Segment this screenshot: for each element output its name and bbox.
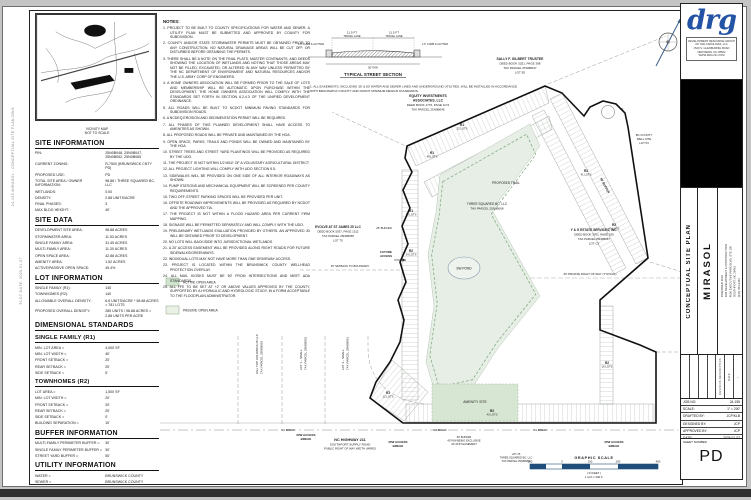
lane-right-name: TRAVEL LANE (385, 34, 403, 38)
note-item: 9. OPEN SPACE, PARKS, TRAILS AND PONDS W… (163, 140, 310, 149)
lot1-label-2: TAX PARCEL 25N0B062 (304, 337, 308, 370)
curb-right-label: 1.5' CURB & GUTTER (422, 42, 448, 46)
note-item: 18. SIGNAGE WILL BE PERMITTED SEPARATELY… (163, 223, 310, 228)
lot25-label-3: TAX PARCEL 25N0B052 (502, 459, 531, 463)
prepared-for-line: DLB DEVELOPMENT & CONSTRUCTION (724, 244, 728, 297)
revision-cell (681, 355, 690, 398)
data-row: SIDE SETBACK =5' (35, 371, 159, 375)
data-row: CURRENT ZONING:R-7500 (BRUNSWICK CNTY PD… (35, 162, 159, 171)
parcel-label-equity-3: DEED BOOK 1776, PAGE 1174 (407, 103, 450, 107)
zone-label: R2 (584, 169, 588, 173)
owner-center-label-2: TAX PARCEL 25N0B068 (470, 207, 503, 211)
note-item: 8. ALL PROPOSED ROADS WILL BE PRIVATE AN… (163, 133, 310, 138)
sheet-number-block: SHEET NUMBER PD (681, 439, 742, 477)
zone-count: 12 LOTS (383, 395, 394, 399)
revision-date-header: DATE (725, 355, 734, 398)
data-row: SINGLE FAMILY PERIMETER BUFFER =30' (35, 448, 159, 452)
job-info-block: JOB NO:24-155SCALE:1" = 200'DRAFTED BY:J… (681, 399, 742, 439)
notes-list: 1. PROJECT TO BE BUILT TO COUNTY SPECIFI… (163, 26, 310, 298)
data-sidebar: VICINITY MAP NOT TO SCALE SITE INFORMATI… (35, 13, 159, 486)
vicinity-map (35, 13, 157, 121)
open-space-area (426, 124, 540, 396)
data-row: PIN:25N0B048, 25N0B047, 25N0B052, 25N0B0… (35, 151, 159, 160)
lot25-label-1: LOT 25 (512, 452, 521, 456)
cul-de-sac (602, 106, 615, 119)
access-break-2b: BREAK (393, 444, 405, 448)
section-title-site-data: SITE DATA (35, 217, 159, 226)
easement-note-line1: 1. ALL EASEMENTS, INCLUDING 30' & 50' WA… (310, 85, 517, 89)
parcel-label-sally-3: TAX PARCEL 25N0B047 (503, 66, 536, 70)
zone-count: 40 LOTS (609, 227, 620, 231)
revision-cell (690, 355, 699, 398)
highway-row-note: PUBLIC RIGHT OF WAY WIDTH VARIES (324, 447, 376, 451)
data-row: PROPOSED USE:PD (35, 173, 159, 177)
data-row: WATER =BRUNSWICK COUNTY (35, 474, 159, 478)
data-row: LOT AREA =1,500 SF (35, 390, 159, 394)
revision-cell (708, 355, 717, 398)
hilltop-label-1: HILL TOP HOLDINGS 25 LLC (255, 333, 259, 374)
data-row: TOWNHOMES (R2):140 (35, 292, 159, 296)
note-item: 24. ALL MAIL KIOSKS MUST BE 50' FROM INT… (163, 274, 310, 283)
parcel-label-yg-2: DEED BOOK 3761, PAGE 529 (574, 233, 614, 237)
note-item: 19. PRELIMINARY WETLANDS EVALUATION PROV… (163, 229, 310, 238)
rotated-parcel-labels: HILL TOP HOLDINGS 25 LLC TAX PARCEL 25N0… (255, 333, 350, 374)
data-row: TOTAL SITE AREA / OWNER INFORMATION:98.8… (35, 179, 159, 188)
prepared-for-block: PREPARED FOR: DLB DEVELOPMENT & CONSTRUC… (720, 244, 741, 297)
private-row-label: 60' PRIVATE RIGHT OF WAY (TYPICAL) (564, 272, 617, 276)
data-row: STORMWATER AREA:11.53 ACRES (35, 235, 159, 239)
buffer-bottom-3: OF AT&T EASEMENT (451, 442, 477, 446)
street-section-title: TYPICAL STREET SECTION (344, 72, 402, 77)
prepared-for-line: 4006 EXECUTIVE PARK BLVD, STE 100 (728, 244, 732, 297)
legend-label-passive: PASSIVE OPEN AREA (183, 309, 219, 313)
sheet-title-vertical: CONCEPTUAL SITE PLAN (686, 224, 692, 319)
job-info-rows: JOB NO:24-155SCALE:1" = 200'DRAFTED BY:J… (681, 399, 742, 439)
highway-name: NC HIGHWAY 211 (334, 438, 365, 442)
parcel-label-yg-3: TAX PARCEL 25N0B067 (578, 237, 610, 241)
buffer-rows: MULTI-FAMILY PERIMETER BUFFER =30'SINGLE… (35, 441, 159, 458)
margin-file-note: 24-155 MIRASOL - CONCEPTUAL SITE PLAN.DW… (11, 107, 15, 206)
lot-band-right (600, 306, 613, 404)
section-title-lot-information: LOT INFORMATION (35, 275, 159, 284)
revision-desc-header: REVISION DESCRIPTION (716, 355, 725, 398)
drawing-sheet-stage: 24-155 MIRASOL - CONCEPTUAL SITE PLAN.DW… (0, 0, 751, 500)
zone-label: R2 (409, 249, 413, 253)
seal-block (681, 80, 742, 188)
job-info-row: APPROVED BY:JCP (681, 428, 742, 435)
zone-label: R2 (490, 409, 494, 413)
hilltop-label-2: TAX PARCEL 25N0B063 (260, 341, 264, 374)
title-block: drg DEVELOPMENT RESOURCE GROUP OF THE CA… (680, 3, 743, 480)
lot1-label-1: LOT 1 - SMALL (299, 349, 303, 370)
data-row: MIN. LOT WIDTH =40' (35, 352, 159, 356)
margin-plot-note: PLOT DATE: 2025-01-07 (19, 257, 23, 304)
notes-title: NOTES: (163, 19, 310, 24)
job-info-row: SCALE:1" = 200' (681, 406, 742, 413)
data-row: SINGLE FAMILY AREA:31.45 ACRES (35, 241, 159, 245)
note-item: 11. THE PROJECT IS NOT WITHIN 1/2 MILE O… (163, 161, 310, 166)
parcel-label-equity-4: TAX PARCEL 25N0B046 (411, 108, 444, 112)
data-row: MULTI-FAMILY AREA:11.30 ACRES (35, 247, 159, 251)
pond-label: SW POND (456, 267, 472, 271)
section-title-buffer-information: BUFFER INFORMATION (35, 430, 159, 439)
easement-note-line2: WITH BRUNSWICK COUNTY AND NCDOT MINIMUM … (310, 89, 419, 93)
lot2-label-1: LOT 2 - SMALL (341, 349, 345, 370)
zone-label: R1 (409, 209, 413, 213)
data-row: AMENITY AREA:1.52 ACRES (35, 260, 159, 264)
data-row: DEVELOPMENT SITE AREA:98.88 ACRES (35, 228, 159, 232)
scale-tick: 0 (561, 460, 563, 464)
graphic-scale-title: GRAPHIC SCALE (574, 456, 613, 460)
revisions-block: REVISION DESCRIPTION DATE - (681, 355, 742, 399)
prepared-for-line: PREPARED FOR: (720, 244, 724, 297)
drg-logo: drg (681, 7, 742, 35)
owner-center-label-1: THREE SQUARED BC, LLC (467, 202, 508, 206)
parcel-label-equity-2: ASSOCIATES, LLC (413, 99, 444, 103)
zone-label: R1 (430, 151, 434, 155)
vicinity-blob-small (124, 68, 133, 73)
section-bottom-dim: 50' R/W (368, 66, 378, 70)
scale-tick: 200 (616, 460, 621, 464)
note-item: 12. ALL PROJECT LIGHTING WILL COMPLY WIT… (163, 167, 310, 172)
parcel-label-well-3: LOT 54 (639, 141, 649, 145)
single-family-rows: MIN. LOT AREA =4,000 SFMIN. LOT WIDTH =4… (35, 346, 159, 376)
sheet-shadow (0, 489, 751, 497)
job-info-row: DESIGNED BY:JCP (681, 421, 742, 428)
note-item: 7. ALL PHASES OF THIS PLANNED DEVELOPMEN… (163, 123, 310, 132)
parcel-label-equity-1: EQUITY INVESTMENTS (409, 94, 447, 98)
note-item: 13. SIDEWALKS WILL BE PROVIDED ON ONE SI… (163, 174, 310, 183)
scale-bar-ticks: 100 0 100 200 400 (528, 460, 661, 464)
revision-cell (699, 355, 708, 398)
data-row: FRONT SETBACK =20' (35, 403, 159, 407)
job-info-row: DATE:2025-01-07 (681, 435, 742, 439)
scale-tick: 400 (656, 460, 661, 464)
note-item: 15. TWO OFF-STREET PARKING SPACES WILL B… (163, 195, 310, 200)
zone-count: 41 LOTS (581, 173, 592, 177)
highway-labels: NC HIGHWAY 211 SOUTHPORT SUPPLY ROAD PUB… (281, 428, 623, 463)
data-row: OPEN SPACE AREA:42.88 ACRES (35, 254, 159, 258)
access-break-1b: BREAK (301, 437, 313, 441)
zone-count: 18 LOTS (406, 213, 417, 217)
data-row: FRONT SETBACK =20' (35, 358, 159, 362)
prepared-for-line: (910) 454-4443 (736, 244, 740, 297)
scale-tick: 100 (588, 460, 593, 464)
data-row: DENSITY:2.88 UNITS/ACRE (35, 196, 159, 200)
project-title-block: CONCEPTUAL SITE PLAN MIRASOL PREPARED FO… (681, 188, 742, 355)
firm-line: WWW.DRG-NC.COM (687, 54, 736, 58)
cl-break-1: C/L BREAK (281, 428, 295, 432)
access-break-3b: BREAK (609, 444, 621, 448)
note-item: 16. OFFSITE ROADWAY IMPROVEMENTS WILL BE… (163, 201, 310, 210)
job-info-row: JOB NO:24-155 (681, 399, 742, 406)
zone-label: R1 (460, 123, 464, 127)
data-row: PROPOSED OVERALL DENSITY:285 UNITS / 98.… (35, 309, 159, 318)
utility-rows: WATER =BRUNSWICK COUNTYSEWER =BRUNSWICK … (35, 474, 159, 485)
parcel-label-evolve-3: TAX PARCEL 25N0B065 (322, 234, 354, 238)
data-row: SIDE SETBACK =0' (35, 415, 159, 419)
prepared-for-line: SOUTHPORT, NC 28461 (732, 244, 736, 297)
data-row: WETLANDS:0.00 (35, 190, 159, 194)
parcel-label-evolve-4: LOT 75 (333, 239, 343, 243)
data-row: SEWER =BRUNSWICK COUNTY (35, 480, 159, 484)
data-row: ALLOWABLE OVERALL DENSITY:6.8 UNITS/ACRE… (35, 299, 159, 308)
data-row: ACTIVE/PASSIVE OPEN SPACE:49.4% (35, 266, 159, 270)
note-item: 5. ALL ROADS WILL BE BUILT TO NCDOT MINI… (163, 106, 310, 115)
vicinity-caption: VICINITY MAP NOT TO SCALE (35, 127, 159, 136)
zone-count: 22 LOTS (457, 127, 468, 131)
sheet-number-label: SHEET NUMBER (681, 439, 742, 445)
job-info-row: DRAFTED BY:JCP/KLB (681, 413, 742, 420)
cl-break-2: C/L BREAK (433, 428, 447, 432)
legend-swatch-passive (166, 306, 179, 314)
note-item: 22. INDIVIDUAL LOTS MAY NOT HAVE MORE TH… (163, 257, 310, 262)
proposed-trail-label: PROPOSED TRAIL (492, 181, 520, 185)
section-title-site-information: SITE INFORMATION (35, 140, 159, 149)
sheet-number: PD (681, 448, 742, 466)
data-row: MULTI-FAMILY PERIMETER BUFFER =30' (35, 441, 159, 445)
data-row: BUILDING SEPARATION =10' (35, 421, 159, 425)
zone-label: R1 (386, 391, 390, 395)
data-row: REAR SETBACK =20' (35, 409, 159, 413)
lane-left-name: TRAVEL LANE (343, 34, 361, 38)
note-item: 1. PROJECT TO BE BUILT TO COUNTY SPECIFI… (163, 26, 310, 40)
data-row: REAR SETBACK =20' (35, 365, 159, 369)
note-item: 23. PROJECT IS LOCATED WITHIN THE BRUNSW… (163, 263, 310, 272)
scale-ratio: 1 inch = 200 ft. (585, 475, 604, 479)
zone-count: 45 LOTS (427, 155, 438, 159)
data-row: MAX BLDG HEIGHT:40' (35, 208, 159, 212)
parcel-label-evolve-1: EVOLVE AT ST JAMES 25 LLC (315, 225, 362, 229)
cl-break-3: C/L BREAK (533, 428, 547, 432)
pavement-crown (332, 51, 414, 57)
parcel-label-sally-4: LOT 55 (515, 71, 525, 75)
site-data-rows: DEVELOPMENT SITE AREA:98.88 ACRESSTORMWA… (35, 228, 159, 270)
buffer-left-label: 25' BUFFER (376, 226, 392, 230)
curb-right (414, 50, 420, 57)
revision-mark-cell: - (734, 355, 742, 398)
north-arrow-icon (656, 16, 682, 66)
note-item: 6. A NCDEQ EROSION AND SEDIMENTATION PER… (163, 116, 310, 121)
setback-label: 25' SETBACK TO BOUNDARY (331, 264, 370, 268)
parcel-label-sally-2: DEED BOOK 3251, PAGE 398 (500, 62, 541, 66)
note-item: 10. STREET TREES AND STREET YARD PLANTIN… (163, 150, 310, 159)
section-title-townhomes: TOWNHOMES (R2) (35, 379, 159, 387)
lot2-label-2: TAX PARCEL 25N0B061 (346, 337, 350, 370)
lot-information-rows: SINGLE FAMILY (R1):145TOWNHOMES (R2):140… (35, 286, 159, 318)
parcel-label-yg-4: LOT C3 (589, 242, 599, 246)
townhomes-rows: LOT AREA =1,500 SFMIN. LOT WIDTH =20'FRO… (35, 390, 159, 426)
vicinity-town-blob (84, 25, 106, 37)
firm-logo-block: drg DEVELOPMENT RESOURCE GROUP OF THE CA… (681, 4, 742, 80)
note-item: 14. PUMP STATIONS AND MECHANICAL EQUIPME… (163, 184, 310, 193)
typical-street-section: 11.5 FT TRAVEL LANE 11.5 FT TRAVEL LANE … (298, 31, 517, 94)
zone-label: R2 (605, 361, 609, 365)
amenity-label: AMENITY SITE (463, 400, 487, 404)
data-row: MIN. LOT WIDTH =20' (35, 396, 159, 400)
zone-label: R2 (612, 223, 616, 227)
graphic-scale: GRAPHIC SCALE 100 0 100 200 400 ( IN FEE… (528, 456, 661, 479)
general-notes: NOTES: 1. PROJECT TO BE BUILT TO COUNTY … (163, 19, 310, 300)
note-item: 21. A 20' ACCESS EASEMENT WILL BE PROVID… (163, 246, 310, 255)
buffer-bottom-1: 50' BUFFER (457, 435, 472, 439)
project-name-vertical: MIRASOL (702, 242, 713, 300)
zone-count: 40 LOTS (487, 413, 498, 417)
buffer-bottom-2: 40' R/W BEING EXCLUSIVE (447, 439, 480, 443)
future-access-label-2: ACCESS (380, 254, 392, 258)
section-title-dimensional-standards: DIMENSIONAL STANDARDS (35, 322, 159, 331)
parcel-label-evolve-2: DEED BOOK 5037, PAGE 1512 (317, 230, 358, 234)
note-item: 25. ALL FFE TO BE SET AT +2' OR ABOVE VA… (163, 285, 310, 299)
note-item: 3. THERE SHALL BE A NOTE ON THE FINAL PL… (163, 57, 310, 80)
zone-count: 14 LOTS (406, 253, 417, 257)
parcel-label-sally-1: SALLY F. GILBERT TRUSTEE (497, 57, 545, 61)
note-item: 2. COUNTY AND/OR STATE STORMWATER PERMIT… (163, 41, 310, 55)
note-item: 4. A HOME OWNERS ASSOCIATION WILL BE FOR… (163, 81, 310, 104)
note-item: 20. NO LOTS WILL BACK/SIDE INTO JURISDIC… (163, 240, 310, 245)
firm-address: DEVELOPMENT RESOURCE GROUP OF THE CAROLI… (686, 37, 737, 60)
scale-tick: 100 (528, 460, 533, 464)
vicinity-caption-scale: NOT TO SCALE (35, 131, 159, 135)
note-item: 17. THE PROJECT IS NOT WITHIN A FLOOD HA… (163, 212, 310, 221)
data-row: SINGLE FAMILY (R1):145 (35, 286, 159, 290)
data-row: STREET YARD BUFFER =50' (35, 454, 159, 458)
section-title-single-family: SINGLE FAMILY (R1) (35, 335, 159, 343)
data-row: MIN. LOT AREA =4,000 SF (35, 346, 159, 350)
data-row: FINAL PHASES:3 (35, 202, 159, 206)
zone-count: 16 LOTS (602, 365, 613, 369)
section-title-utility-information: UTILITY INFORMATION (35, 462, 159, 471)
curb-left (326, 50, 332, 57)
site-information-rows: PIN:25N0B048, 25N0B047, 25N0B052, 25N0B0… (35, 151, 159, 213)
cul-de-sac-label: C1 (620, 107, 624, 111)
